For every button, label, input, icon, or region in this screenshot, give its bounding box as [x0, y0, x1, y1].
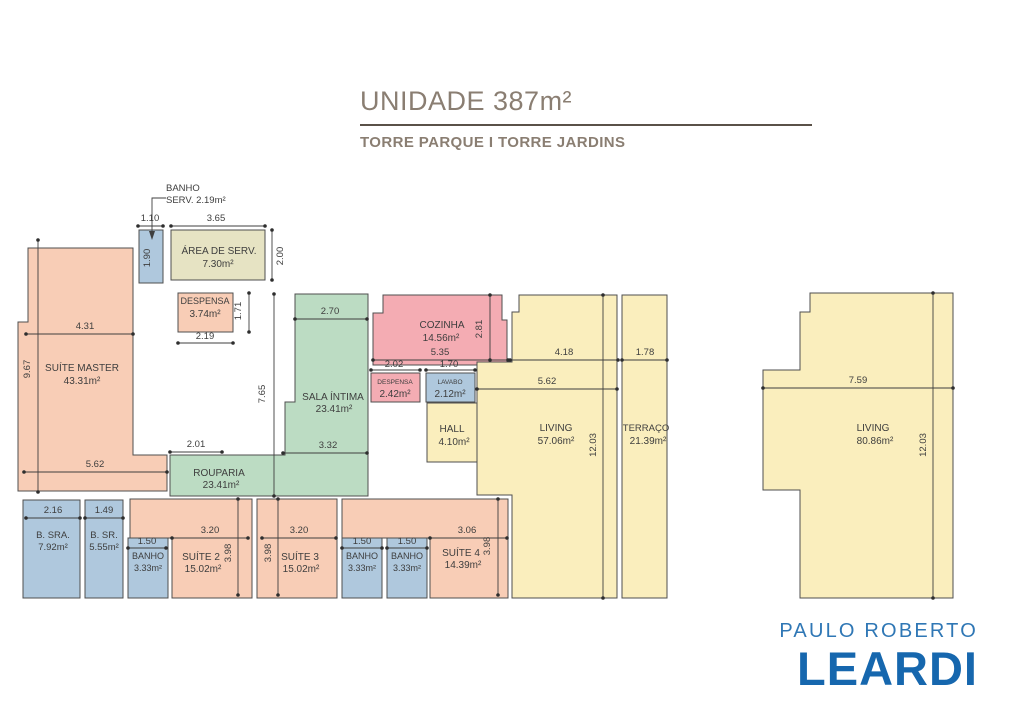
dim-2-81: 2.81	[474, 320, 485, 339]
dimension-endpoint-dot	[615, 387, 619, 391]
room-suite-3-area: 15.02m²	[283, 564, 320, 575]
room-despensa-1-name: DESPENSA	[180, 296, 229, 306]
room-hall-name: HALL	[439, 424, 464, 435]
dimension-endpoint-dot	[270, 228, 274, 232]
dimension-endpoint-dot	[496, 497, 500, 501]
floor-plan-svg: ÁREA DE SERV. 7.30m² DESPENSA 3.74m² SUÍ…	[0, 0, 1023, 725]
dim-3-32: 3.32	[319, 440, 338, 451]
dimension-endpoint-dot	[293, 317, 297, 321]
dimension-endpoint-dot	[161, 224, 165, 228]
dim-1-10: 1.10	[141, 213, 160, 224]
dimension-endpoint-dot	[78, 516, 82, 520]
dimension-endpoint-dot	[665, 358, 669, 362]
dimension-endpoint-dot	[365, 451, 369, 455]
dim-7-65: 7.65	[257, 385, 268, 404]
room-banho-2-name: BANHO	[346, 551, 378, 561]
dimension-endpoint-dot	[170, 536, 174, 540]
room-b-sra-area: 7.92m²	[38, 542, 68, 553]
dim-1-50-banho2: 1.50	[353, 536, 372, 547]
dimension-endpoint-dot	[263, 224, 267, 228]
dimension-endpoint-dot	[272, 494, 276, 498]
dimension-endpoint-dot	[24, 516, 28, 520]
dimension-endpoint-dot	[121, 516, 125, 520]
dim-3-20-suite2: 3.20	[201, 525, 220, 536]
dimension-endpoint-dot	[36, 490, 40, 494]
room-lavabo-name: LAVABO	[437, 379, 462, 386]
dimension-endpoint-dot	[418, 368, 422, 372]
dim-2-02: 2.02	[385, 359, 404, 370]
dim-5-62-living: 5.62	[538, 376, 557, 387]
dimension-endpoint-dot	[496, 593, 500, 597]
dimension-endpoint-dot	[36, 238, 40, 242]
dimension-endpoint-dot	[371, 358, 375, 362]
dimension-endpoint-dot	[281, 451, 285, 455]
room-terraco-name: TERRAÇO	[623, 423, 669, 434]
floor-plan-page: UNIDADE 387m² TORRE PARQUE I TORRE JARDI…	[0, 0, 1023, 725]
dimension-endpoint-dot	[165, 470, 169, 474]
banho-serv-callout-line1: BANHO	[166, 183, 200, 194]
dimension-endpoint-dot	[176, 341, 180, 345]
dimension-endpoint-dot	[247, 330, 251, 334]
room-cozinha-name: COZINHA	[420, 320, 465, 331]
dim-1-50-banho3: 1.50	[398, 536, 417, 547]
room-lavabo-area: 2.12m²	[434, 389, 466, 400]
dim-1-78: 1.78	[636, 347, 655, 358]
dim-2-01: 2.01	[187, 439, 206, 450]
dimension-endpoint-dot	[369, 368, 373, 372]
dim-12-03-living2: 12.03	[918, 433, 929, 457]
dim-12-03-living: 12.03	[588, 433, 599, 457]
dimension-endpoint-dot	[506, 358, 510, 362]
dimension-endpoint-dot	[136, 224, 140, 228]
dim-3-06: 3.06	[458, 525, 477, 536]
logo-paulo-roberto: PAULO ROBERTO	[779, 620, 978, 643]
room-suite-2-area: 15.02m²	[185, 564, 222, 575]
dimension-endpoint-dot	[620, 358, 624, 362]
dim-2-00: 2.00	[275, 247, 286, 266]
leardi-logo: PAULO ROBERTO LEARDI	[779, 620, 978, 693]
room-b-sr-name: B. SR.	[90, 530, 117, 541]
room-suite-4-name: SUÍTE 4	[442, 546, 480, 559]
room-despensa-2-name: DESPENSA	[377, 379, 413, 386]
dimension-endpoint-dot	[247, 291, 251, 295]
dim-4-31: 4.31	[76, 321, 95, 332]
dimension-endpoint-dot	[931, 596, 935, 600]
dimension-endpoint-dot	[236, 497, 240, 501]
room-b-sra-name: B. SRA.	[36, 530, 70, 541]
dimension-endpoint-dot	[169, 224, 173, 228]
room-sala-intima-area: 23.41m²	[316, 404, 353, 415]
room-suite-3-name: SUÍTE 3	[281, 550, 319, 563]
room-terraco-area: 21.39m²	[630, 436, 667, 447]
dimension-endpoint-dot	[616, 358, 620, 362]
dim-2-16: 2.16	[44, 505, 63, 516]
room-banho-2-area: 3.33m²	[348, 563, 376, 573]
dim-3-98-suite3: 3.98	[263, 544, 274, 563]
room-rouparia-area: 23.41m²	[203, 480, 240, 491]
room-living-1-name: LIVING	[540, 423, 573, 434]
dimension-endpoint-dot	[601, 596, 605, 600]
dim-3-65: 3.65	[207, 213, 226, 224]
dim-3-98-suite2: 3.98	[223, 544, 234, 563]
room-banho-1-name: BANHO	[132, 551, 164, 561]
dimension-endpoint-dot	[22, 470, 26, 474]
room-b-sr-area: 5.55m²	[89, 542, 119, 553]
dimension-endpoint-dot	[168, 450, 172, 454]
dimension-endpoint-dot	[236, 593, 240, 597]
room-living-2-name: LIVING	[857, 423, 890, 434]
dimension-endpoint-dot	[601, 293, 605, 297]
dim-1-71: 1.71	[233, 302, 244, 321]
dimension-endpoint-dot	[272, 292, 276, 296]
dim-3-98-suite4: 3.98	[482, 537, 493, 556]
dimension-endpoint-dot	[488, 358, 492, 362]
room-cozinha-area: 14.56m²	[423, 333, 460, 344]
dimension-endpoint-dot	[270, 278, 274, 282]
dimension-endpoint-dot	[246, 536, 250, 540]
room-banho-3-name: BANHO	[391, 551, 423, 561]
dim-5-62-master: 5.62	[86, 459, 105, 470]
room-suite-master-area: 43.31m²	[64, 376, 101, 387]
dim-7-59: 7.59	[849, 375, 868, 386]
dimension-endpoint-dot	[475, 387, 479, 391]
dimension-endpoint-dot	[220, 450, 224, 454]
dim-2-19: 2.19	[196, 331, 215, 342]
dimension-endpoint-dot	[340, 546, 344, 550]
room-suite-master-name: SUÍTE MASTER	[45, 361, 119, 374]
room-area-de-serv-area: 7.30m²	[202, 259, 234, 270]
room-despensa-1-area: 3.74m²	[189, 309, 221, 320]
dimension-endpoint-dot	[424, 368, 428, 372]
dimension-endpoint-dot	[231, 341, 235, 345]
dimension-endpoint-dot	[761, 386, 765, 390]
dim-1-70: 1.70	[440, 359, 459, 370]
room-banho-1-area: 3.33m²	[134, 563, 162, 573]
dim-2-70: 2.70	[321, 306, 340, 317]
dimension-endpoint-dot	[83, 516, 87, 520]
dimension-endpoint-dot	[365, 317, 369, 321]
room-living-1-area: 57.06m²	[538, 436, 575, 447]
room-suite-4-area: 14.39m²	[445, 560, 482, 571]
dimension-endpoint-dot	[380, 546, 384, 550]
dimension-endpoint-dot	[24, 332, 28, 336]
room-sala-intima-name: SALA ÍNTIMA	[302, 390, 364, 403]
dimension-endpoint-dot	[126, 546, 130, 550]
dimension-endpoint-dot	[260, 536, 264, 540]
room-hall-area: 4.10m²	[438, 437, 470, 448]
dimension-endpoint-dot	[951, 386, 955, 390]
dimension-endpoint-dot	[488, 293, 492, 297]
dimension-endpoint-dot	[473, 368, 477, 372]
room-area-de-serv-name: ÁREA DE SERV.	[181, 244, 256, 257]
dimension-endpoint-dot	[505, 536, 509, 540]
dimension-endpoint-dot	[276, 497, 280, 501]
dimension-endpoint-dot	[334, 536, 338, 540]
dimension-endpoint-dot	[931, 291, 935, 295]
dim-9-67: 9.67	[22, 360, 33, 379]
dim-5-35: 5.35	[431, 347, 450, 358]
room-despensa-2-area: 2.42m²	[379, 389, 411, 400]
dimension-endpoint-dot	[131, 332, 135, 336]
dim-1-50-banho1: 1.50	[138, 536, 157, 547]
room-living-2-area: 80.86m²	[857, 436, 894, 447]
dimension-endpoint-dot	[425, 546, 429, 550]
dim-4-18: 4.18	[555, 347, 574, 358]
dimension-endpoint-dot	[164, 546, 168, 550]
dimension-endpoint-dot	[428, 536, 432, 540]
dim-1-49: 1.49	[95, 505, 114, 516]
room-rouparia-name: ROUPARIA	[193, 468, 245, 479]
room-banho-3-area: 3.33m²	[393, 563, 421, 573]
dim-1-90: 1.90	[142, 249, 153, 268]
room-suite-2-name: SUÍTE 2	[182, 550, 220, 563]
banho-serv-callout-line2: SERV. 2.19m²	[166, 195, 226, 206]
dimension-endpoint-dot	[385, 546, 389, 550]
dimension-endpoint-dot	[276, 593, 280, 597]
logo-leardi: LEARDI	[779, 644, 978, 693]
dim-3-20-suite3: 3.20	[290, 525, 309, 536]
